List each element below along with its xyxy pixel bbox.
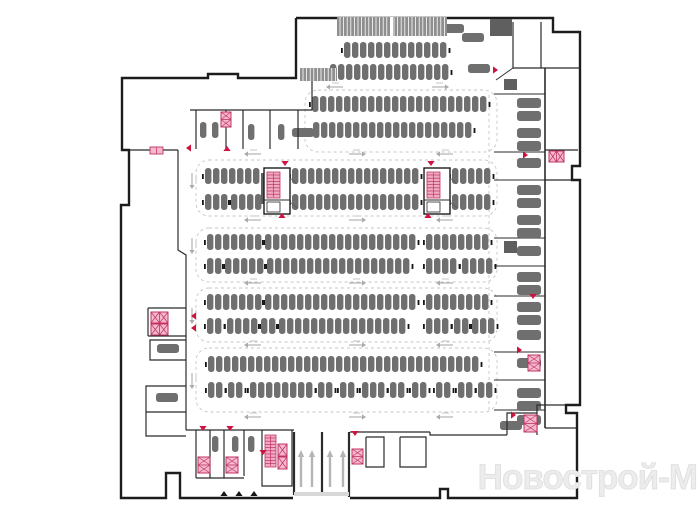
direction-triangle	[281, 161, 288, 166]
car	[385, 294, 391, 310]
car	[440, 96, 446, 112]
car	[517, 185, 541, 195]
car	[517, 98, 541, 108]
car	[335, 318, 341, 334]
car	[329, 122, 335, 138]
car	[331, 258, 337, 274]
car	[223, 294, 229, 310]
direction-triangle	[220, 491, 227, 496]
car	[360, 96, 366, 112]
car	[332, 168, 338, 184]
car	[281, 234, 287, 250]
car	[267, 258, 273, 274]
car	[369, 234, 375, 250]
stall-tick	[228, 200, 230, 205]
car	[442, 234, 448, 250]
stall-tick	[469, 324, 471, 329]
car	[328, 356, 334, 372]
car	[450, 294, 456, 310]
car	[345, 294, 351, 310]
car	[321, 234, 327, 250]
stall-tick	[455, 388, 457, 393]
stall-tick	[481, 362, 483, 367]
car	[360, 42, 366, 58]
car	[292, 168, 298, 184]
car	[235, 318, 241, 334]
ramp-arrow-head	[327, 450, 333, 457]
car	[348, 382, 354, 398]
stall-tick	[423, 324, 425, 329]
car	[434, 64, 440, 80]
car	[361, 122, 367, 138]
stall-tick	[258, 324, 260, 329]
car	[291, 258, 297, 274]
car	[265, 294, 271, 310]
car	[449, 122, 455, 138]
car	[239, 194, 245, 210]
car	[517, 302, 541, 312]
car	[360, 356, 366, 372]
inner-wall	[366, 437, 384, 467]
car	[464, 356, 470, 372]
car	[388, 194, 394, 210]
car	[418, 64, 424, 80]
car	[324, 194, 330, 210]
car	[390, 382, 396, 398]
car	[424, 42, 430, 58]
parking-floorplan: Новострой-М	[0, 0, 700, 525]
direction-triangle	[351, 431, 358, 436]
car	[434, 318, 440, 334]
car	[337, 234, 343, 250]
direction-triangle	[529, 294, 536, 299]
car	[212, 436, 218, 452]
car	[376, 96, 382, 112]
stair-core-room	[427, 202, 440, 212]
car	[313, 122, 319, 138]
car	[402, 64, 408, 80]
stall-tick	[489, 102, 491, 107]
stall-tick	[262, 240, 264, 245]
car	[368, 356, 374, 372]
car	[239, 234, 245, 250]
direction-triangle	[427, 161, 434, 166]
direction-triangle	[223, 146, 230, 151]
car	[460, 194, 466, 210]
lane-arrow-head	[436, 280, 440, 285]
car	[400, 96, 406, 112]
car	[462, 318, 468, 334]
car	[207, 318, 213, 334]
car	[392, 356, 398, 372]
car	[266, 382, 272, 398]
car	[517, 388, 541, 398]
stall-tick	[421, 200, 423, 205]
car	[363, 258, 369, 274]
car	[340, 168, 346, 184]
car	[426, 258, 432, 274]
car	[292, 194, 298, 210]
ramp-arrow-head	[340, 450, 346, 457]
stall-tick	[409, 388, 411, 393]
lane-arrow-head	[436, 217, 440, 222]
car	[247, 194, 253, 210]
car	[336, 356, 342, 372]
car	[337, 294, 343, 310]
car	[434, 234, 440, 250]
car	[398, 382, 404, 398]
car	[369, 294, 375, 310]
car	[229, 168, 235, 184]
car	[290, 382, 296, 398]
stall-tick	[474, 128, 476, 133]
car	[433, 122, 439, 138]
car	[157, 344, 179, 353]
car	[452, 168, 458, 184]
car	[452, 194, 458, 210]
car	[425, 122, 431, 138]
car	[393, 294, 399, 310]
car	[517, 285, 541, 295]
lane-arrow-head	[362, 414, 366, 419]
car	[348, 194, 354, 210]
car	[377, 294, 383, 310]
direction-triangle	[493, 66, 498, 73]
car	[297, 294, 303, 310]
car	[298, 382, 304, 398]
car	[474, 294, 480, 310]
car	[517, 246, 541, 256]
car	[257, 258, 263, 274]
car	[478, 258, 484, 274]
stall-tick	[418, 300, 420, 305]
threshold-strip	[294, 492, 349, 496]
car	[403, 258, 409, 274]
car	[328, 96, 334, 112]
car	[253, 168, 259, 184]
car	[321, 294, 327, 310]
car	[306, 382, 312, 398]
car	[424, 356, 430, 372]
car	[462, 33, 484, 42]
stall-tick	[276, 324, 278, 329]
car	[215, 294, 221, 310]
ramp-arrow-head	[298, 450, 304, 457]
car	[369, 122, 375, 138]
car	[442, 64, 448, 80]
car	[401, 234, 407, 250]
car	[362, 382, 368, 398]
car	[386, 64, 392, 80]
car	[377, 122, 383, 138]
stall-tick	[262, 300, 264, 305]
car	[412, 168, 418, 184]
car	[385, 122, 391, 138]
car	[401, 122, 407, 138]
car	[243, 318, 249, 334]
lane-arrow-head	[445, 84, 449, 89]
car	[517, 158, 541, 168]
car	[212, 122, 218, 138]
car	[404, 194, 410, 210]
car	[468, 64, 490, 73]
car	[221, 194, 227, 210]
lane-arrow-head	[189, 385, 194, 389]
car	[468, 168, 474, 184]
car	[400, 356, 406, 372]
car	[458, 294, 464, 310]
car	[248, 124, 254, 140]
stall-tick	[433, 388, 435, 393]
car	[304, 356, 310, 372]
car	[384, 96, 390, 112]
stall-tick	[475, 388, 477, 393]
car	[312, 356, 318, 372]
car	[315, 258, 321, 274]
car	[233, 258, 239, 274]
car	[387, 258, 393, 274]
car	[241, 258, 247, 274]
car	[213, 168, 219, 184]
car	[223, 234, 229, 250]
car	[329, 234, 335, 250]
car	[340, 382, 346, 398]
car	[225, 258, 231, 274]
car	[380, 194, 386, 210]
car	[279, 318, 285, 334]
car	[408, 42, 414, 58]
stall-tick	[357, 388, 359, 393]
car	[232, 436, 238, 452]
car	[393, 122, 399, 138]
car	[353, 234, 359, 250]
car	[385, 234, 391, 250]
car	[472, 318, 478, 334]
car	[200, 122, 206, 138]
outer-wall	[121, 18, 296, 498]
car	[239, 294, 245, 310]
car	[448, 96, 454, 112]
car	[251, 318, 257, 334]
car	[247, 234, 253, 250]
car	[416, 356, 422, 372]
car	[345, 234, 351, 250]
car	[321, 122, 327, 138]
car	[320, 356, 326, 372]
car	[258, 382, 264, 398]
car	[417, 122, 423, 138]
car	[300, 194, 306, 210]
car	[517, 198, 541, 208]
car	[275, 258, 281, 274]
car	[470, 258, 476, 274]
car	[375, 318, 381, 334]
car	[362, 64, 368, 80]
stall-tick	[224, 324, 226, 329]
car	[351, 318, 357, 334]
car	[295, 318, 301, 334]
lane-arrow-head	[436, 414, 440, 419]
car	[215, 234, 221, 250]
stall-tick	[337, 388, 339, 393]
car	[255, 294, 261, 310]
car	[476, 168, 482, 184]
car	[227, 318, 233, 334]
direction-triangle	[235, 491, 242, 496]
car	[344, 356, 350, 372]
direction-triangle	[517, 346, 522, 353]
stall-tick	[204, 264, 206, 269]
inner-wall	[146, 412, 186, 436]
car	[409, 234, 415, 250]
car	[232, 356, 238, 372]
car	[354, 64, 360, 80]
stall-tick	[495, 388, 497, 393]
car	[311, 318, 317, 334]
car	[457, 122, 463, 138]
lane-arrow-head	[362, 280, 366, 285]
car	[383, 318, 389, 334]
stall-tick	[429, 388, 431, 393]
lane-arrow-head	[436, 342, 440, 347]
car	[395, 258, 401, 274]
car	[480, 96, 486, 112]
car	[344, 96, 350, 112]
car	[488, 318, 494, 334]
car	[319, 318, 325, 334]
stall-tick	[497, 324, 499, 329]
car	[480, 318, 486, 334]
stall-tick	[491, 300, 493, 305]
car	[324, 168, 330, 184]
car	[297, 234, 303, 250]
car	[289, 294, 295, 310]
stair-core-room	[267, 202, 280, 212]
stall-tick	[453, 388, 455, 393]
stall-tick	[451, 324, 453, 329]
car	[482, 234, 488, 250]
car	[352, 96, 358, 112]
car	[388, 168, 394, 184]
car	[216, 382, 222, 398]
car	[391, 318, 397, 334]
car	[371, 258, 377, 274]
car	[466, 294, 472, 310]
car	[327, 318, 333, 334]
car	[250, 382, 256, 398]
car	[228, 382, 234, 398]
car	[156, 393, 178, 402]
stall-tick	[449, 48, 451, 53]
car	[517, 330, 541, 340]
car	[410, 64, 416, 80]
car	[247, 294, 253, 310]
car	[361, 234, 367, 250]
ramp-arrow-head	[309, 450, 315, 457]
car	[442, 318, 448, 334]
car	[517, 315, 541, 325]
car	[353, 294, 359, 310]
car	[426, 318, 432, 334]
car	[237, 168, 243, 184]
lane-arrow-head	[244, 342, 248, 347]
car	[278, 124, 284, 140]
car	[486, 258, 492, 274]
car	[396, 194, 402, 210]
car	[399, 318, 405, 334]
car	[376, 356, 382, 372]
car	[404, 168, 410, 184]
car	[318, 382, 324, 398]
car	[359, 318, 365, 334]
inner-wall	[178, 150, 186, 308]
stall-tick	[335, 388, 337, 393]
car	[352, 42, 358, 58]
lane-arrow-head	[362, 342, 366, 347]
lane-arrow-head	[189, 185, 194, 189]
car	[458, 234, 464, 250]
stall-tick	[423, 264, 425, 269]
car	[312, 96, 318, 112]
car	[377, 234, 383, 250]
car	[282, 382, 288, 398]
stall-tick	[412, 264, 414, 269]
car	[517, 128, 541, 138]
car	[468, 194, 474, 210]
car	[416, 42, 422, 58]
car	[370, 382, 376, 398]
stall-tick	[204, 324, 206, 329]
car	[368, 42, 374, 58]
car	[265, 234, 271, 250]
lane-arrow-head	[189, 320, 194, 324]
direction-triangle	[186, 144, 191, 151]
car	[248, 356, 254, 372]
car	[288, 356, 294, 372]
car	[434, 294, 440, 310]
car	[255, 234, 261, 250]
car	[300, 168, 306, 184]
car	[424, 96, 430, 112]
stall-tick	[459, 264, 461, 269]
car	[393, 234, 399, 250]
wall-block	[490, 19, 512, 36]
car	[361, 294, 367, 310]
car	[261, 318, 267, 334]
car	[231, 294, 237, 310]
lane-arrow-head	[244, 151, 248, 156]
car	[323, 258, 329, 274]
car	[450, 258, 456, 274]
car	[231, 234, 237, 250]
car	[346, 64, 352, 80]
car	[378, 382, 384, 398]
stall-tick	[202, 174, 204, 179]
car	[372, 168, 378, 184]
car	[345, 122, 351, 138]
car	[466, 382, 472, 398]
car	[372, 194, 378, 210]
car	[432, 42, 438, 58]
stall-tick	[493, 200, 495, 205]
car	[207, 294, 213, 310]
car	[340, 194, 346, 210]
car	[466, 234, 472, 250]
stall-tick	[309, 102, 311, 107]
car	[478, 382, 484, 398]
lane-arrow-head	[326, 84, 330, 89]
car	[255, 194, 261, 210]
